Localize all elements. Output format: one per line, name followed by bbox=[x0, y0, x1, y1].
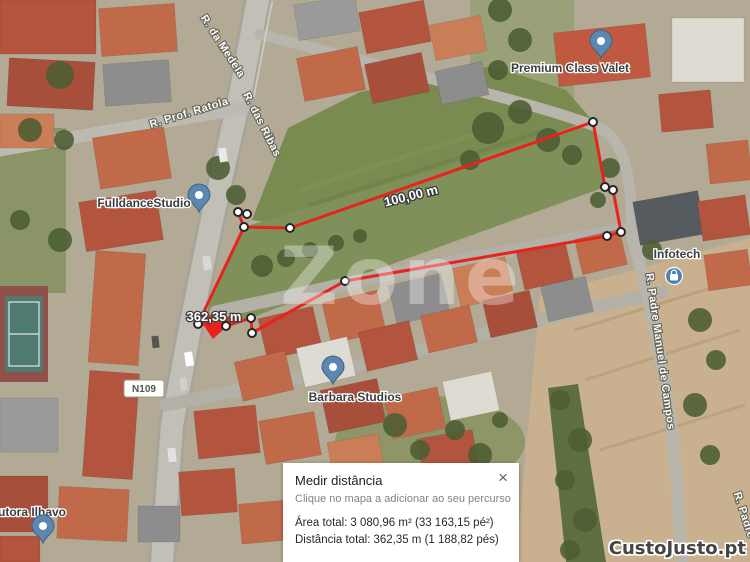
tennis-court bbox=[0, 286, 48, 382]
distance-total-value: 362,35 m (1 188,82 pés) bbox=[373, 534, 498, 546]
distance-total-row: Distância total:362,35 m (1 188,82 pés) bbox=[295, 534, 507, 546]
measure-vertex[interactable] bbox=[609, 186, 617, 194]
measure-vertex[interactable] bbox=[286, 224, 294, 232]
measure-vertex[interactable] bbox=[247, 314, 255, 322]
measure-vertex[interactable] bbox=[234, 208, 242, 216]
poi-label[interactable]: Premium Class Valet bbox=[511, 61, 629, 75]
poi-label[interactable]: utora Ilhavo bbox=[0, 505, 66, 519]
measure-total-label: 362,35 m bbox=[187, 309, 242, 324]
measure-vertex[interactable] bbox=[601, 183, 609, 191]
distance-total-label: Distância total: bbox=[295, 534, 370, 546]
road-badge-n109: N109 bbox=[124, 380, 164, 397]
measure-vertex[interactable] bbox=[243, 210, 251, 218]
measure-vertex[interactable] bbox=[341, 277, 349, 285]
custojusto-watermark: CustoJusto.pt bbox=[609, 538, 746, 559]
measure-panel: × Medir distância Clique no mapa a adici… bbox=[283, 463, 519, 562]
shopping-bag-icon[interactable] bbox=[666, 268, 683, 285]
close-icon[interactable]: × bbox=[496, 467, 510, 488]
measure-vertex[interactable] bbox=[603, 232, 611, 240]
panel-hint: Clique no mapa a adicionar ao seu percur… bbox=[295, 493, 507, 505]
measure-vertex[interactable] bbox=[240, 223, 248, 231]
poi-label[interactable]: Infotech bbox=[654, 247, 701, 261]
road-badge-text: N109 bbox=[132, 384, 156, 395]
area-total-value: 3 080,96 m² (33 163,15 pé²) bbox=[350, 517, 493, 529]
measure-vertex[interactable] bbox=[617, 228, 625, 236]
panel-title: Medir distância bbox=[295, 473, 507, 488]
area-total-label: Área total: bbox=[295, 517, 347, 529]
measure-vertex[interactable] bbox=[248, 329, 256, 337]
measure-vertex[interactable] bbox=[589, 118, 597, 126]
poi-label[interactable]: Barbara Studios bbox=[309, 390, 402, 404]
poi-label[interactable]: FulldanceStudio bbox=[97, 196, 190, 210]
area-total-row: Área total:3 080,96 m² (33 163,15 pé²) bbox=[295, 517, 507, 529]
map-viewport[interactable]: 100,00 m 362,35 m R. da Medela R. Prof. … bbox=[0, 0, 750, 562]
